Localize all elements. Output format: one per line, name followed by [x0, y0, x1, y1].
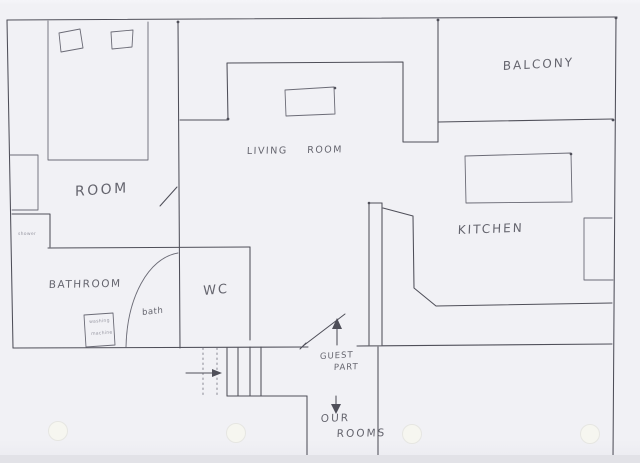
kitchen-table: [465, 153, 572, 203]
kitchen-cupboard: [584, 218, 613, 280]
arrow-up-icon: [332, 318, 342, 345]
interior-walls: [12, 20, 613, 462]
bed: [48, 21, 148, 160]
kitchen-label: KITCHEN: [458, 221, 524, 237]
pillow: [111, 30, 133, 49]
our-rooms-label-line1: OUR: [321, 412, 351, 425]
guest-part-label-line1: GUEST: [320, 350, 354, 362]
guest-part-label-line2: PART: [334, 362, 359, 373]
bath-curve: [126, 253, 178, 347]
our-rooms-label-line2: ROOMS: [336, 427, 386, 440]
entrance-door-swing: [300, 314, 345, 349]
sofa: [285, 87, 335, 116]
arrow-right-icon: [186, 369, 222, 377]
wc-label: WC: [203, 282, 229, 299]
shower-label: shower: [18, 232, 36, 237]
outer-walls: [7, 17, 617, 458]
paper-bottom-edge: [0, 455, 640, 463]
staircase: [203, 347, 261, 397]
wardrobe: [10, 155, 38, 210]
arrow-down-icon: [331, 396, 341, 414]
living-room-label: LIVING ROOM: [247, 144, 344, 157]
pillow: [59, 29, 83, 52]
bathroom-label: BATHROOM: [49, 278, 122, 291]
bedroom-door-swing: [160, 187, 177, 206]
pen-dots: [177, 17, 618, 205]
floor-plan-sketch: BALCONY LIVING ROOM ROOM KITCHEN BATHROO…: [0, 0, 640, 463]
